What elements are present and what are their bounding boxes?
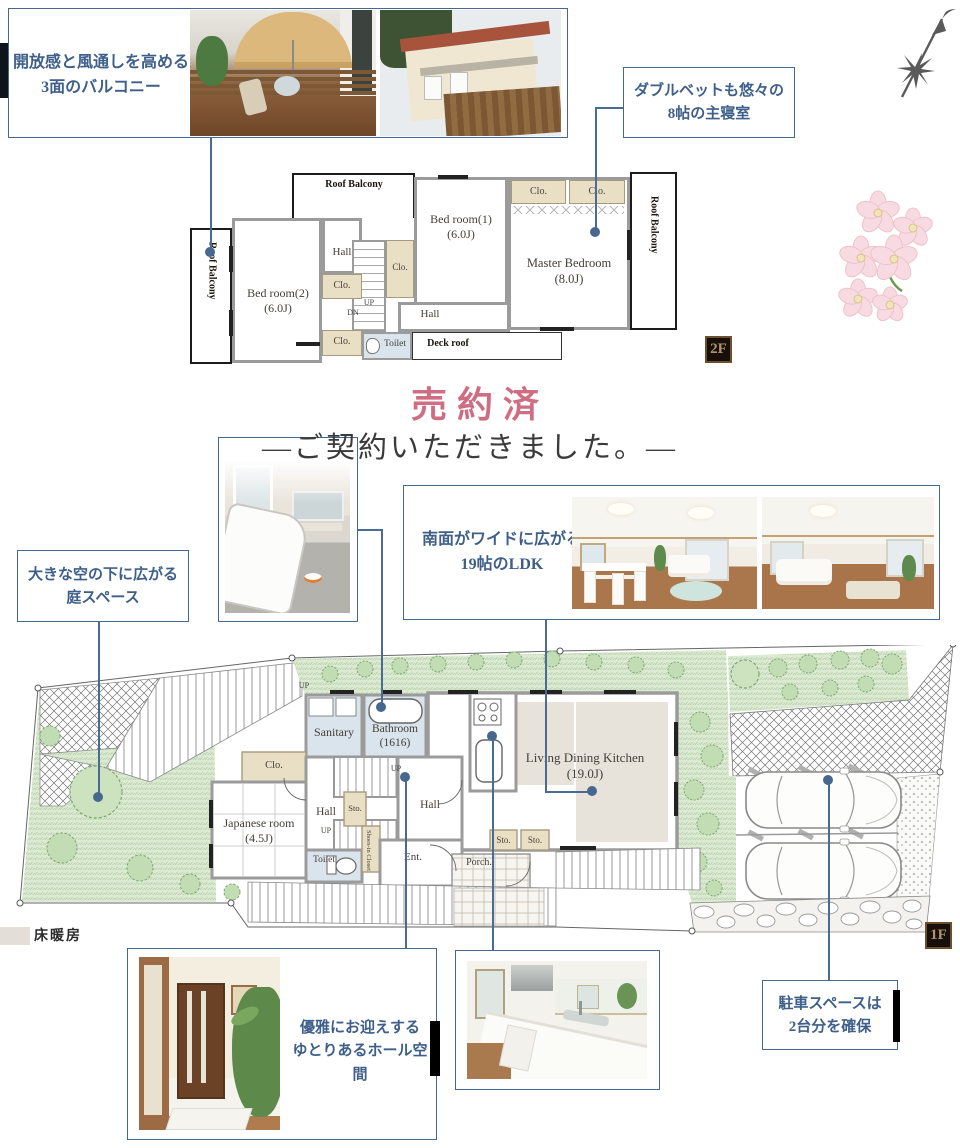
bedroom2-label: Bed room(2) (6.0J) [226,286,330,316]
hall-upper-2f-label: Hall [322,246,362,260]
callout-balcony-line1: 開放感と風通しを高める [11,51,191,76]
callout-garden-text: 大きな空の下に広がる 庭スペース [18,564,188,611]
cherry-blossom-decoration [828,183,948,333]
toilet-2f-label: Toilet [378,339,412,351]
closet-master-right-label: Clo. [569,186,625,199]
callout-balcony: 開放感と風通しを高める 3面のバルコニー [8,8,568,138]
callout-parking-text: 駐車スペースは 2台分を確保 [763,993,897,1040]
callout-hall-line2: ゆとりあるホール空間 [286,1040,434,1087]
japanese-room-label: Japanese room (4.5J) [210,816,308,846]
toilet-1f-label: Toilet [304,855,344,867]
leader-balcony-dot [205,247,215,257]
sto-2-label: Sto. [521,835,549,846]
leader-bath-dot [376,702,386,712]
window-tick [540,327,574,331]
sanitary-label: Sanitary [306,725,362,740]
master-label: Master Bedroom (8.0J) [512,256,626,287]
closet-bed1-2f-label: Clo. [384,262,416,273]
table-shape [274,76,300,96]
bathroom-photo [225,445,350,613]
japanese-room-name: Japanese room [210,816,308,831]
window-tick [627,230,631,260]
plant-shape [902,555,916,581]
ldk-photo-1 [572,497,757,609]
dn-label-2f: DN [340,308,366,318]
ldk-photo-2 [762,497,934,609]
up-label-2f: UP [356,298,382,308]
window-tick [438,175,468,179]
roof-balcony-top-label: Roof Balcony [294,179,414,192]
up-deck-label: UP [292,681,316,691]
page: 開放感と風通しを高める 3面のバルコニー ダブルベットも悠々 [0,0,960,1148]
house-window [424,76,442,100]
left-edge-tab [0,43,8,98]
sold-title: 売約済 [330,376,630,428]
entrance-label: Ent. [386,851,440,865]
bedroom1-size: (6.0J) [410,227,512,242]
callout-ldk: 南面がワイドに広がる 19帖のLDK [403,485,940,620]
leader-parking-dot [823,775,833,785]
window-tick [296,342,320,346]
bedroom1-label: Bed room(1) (6.0J) [410,212,512,242]
dining-table-shape [582,563,646,571]
leader-master-h [595,107,623,109]
leader-garden-dot [93,792,103,802]
range-hood [511,965,553,991]
closet-1f-label: Clo. [242,759,306,772]
floor-2f-badge: 2F [705,336,732,363]
sofa-shape [776,559,832,581]
callout-garden-line2: 庭スペース [18,587,188,610]
ldk-size: (19.0J) [505,766,665,782]
rug-shape [670,581,722,601]
callout-ldk-line1: 南面がワイドに広がる [412,528,592,553]
callout-parking-line1: 駐車スペースは [763,993,897,1016]
porch-label: Porch. [452,857,506,870]
exterior-photo [380,10,561,136]
callout-garden-line1: 大きな空の下に広がる [18,564,188,587]
wood-balcony-shape [444,86,561,136]
kitchen-photo-box [455,950,660,1090]
leader-balcony [210,138,212,252]
entrance-photo [139,957,280,1130]
compass-icon [880,5,960,110]
chair-shape [584,571,596,603]
callout-ldk-text: 南面がワイドに広がる 19帖のLDK [412,528,592,578]
leader-ldk-h [545,791,592,793]
hall-lower-2f-label: Hall [400,308,460,322]
roof-balcony-top: Roof Balcony [292,173,415,218]
bedroom2-size: (6.0J) [226,301,330,316]
leader-bath-v [381,529,383,707]
callout-balcony-line2: 3面のバルコニー [11,76,191,101]
ceiling-light [608,503,634,515]
roof-balcony-right: Roof Balcony [630,172,677,330]
callout-hall-line1: 優雅にお迎えする [286,1017,434,1040]
parking-box-tab [893,990,900,1042]
closet-master-left-label: Clo. [511,186,566,199]
leader-hall [405,777,407,948]
leader-garden [98,622,100,797]
callout-master-line2: 8帖の主寝室 [624,103,794,126]
floorplan-1f-drawing [0,645,960,945]
ldk-label: Living Dining Kitchen (19.0J) [505,750,665,783]
sofa-shape [668,555,710,573]
kitchen-photo [467,961,647,1079]
table-shape [846,581,900,599]
floor-1f-badge: 1F [925,922,952,949]
sto-mid-label: Sto. [344,803,366,814]
crown-molding [572,537,757,539]
chair-shape [612,573,624,605]
hall-left-label: Hall [306,805,346,819]
car-2 [746,839,901,903]
callout-parking-line2: 2台分を確保 [763,1016,897,1039]
leader-ldk-dot [587,786,597,796]
plant-shape [617,983,637,1009]
leader-hall-dot [400,772,410,782]
photo-bucket [304,573,322,583]
door-slit [201,991,206,1083]
hall-box-tab [430,1021,440,1076]
plant-shape [196,36,228,86]
leader-parking [828,780,830,980]
closet-bottom-2f-label: Clo. [322,336,362,349]
bathroom-size: (1616) [362,736,428,750]
door-glass-panel [144,965,162,1115]
window-tick [229,246,233,272]
chair-shape [634,571,646,601]
floor-heating-label: 床暖房 [34,928,104,946]
deck-roof-label: Deck roof [416,338,480,351]
sto-1-label: Sto. [490,835,517,846]
crown-molding [762,535,934,537]
closet-mid-2f-label: Clo. [322,280,362,293]
callout-hall-text: 優雅にお迎えする ゆとりあるホール空間 [286,1017,434,1087]
leader-master-dot [590,227,600,237]
leader-ldk-v [545,620,547,792]
ceiling-light [688,507,714,519]
ceiling-light [810,505,836,517]
hanger-zigzag [512,206,624,214]
japanese-room-size: (4.5J) [210,831,308,846]
floor-heating-bar [0,927,30,945]
tile-floor [165,1108,252,1130]
master-name: Master Bedroom [512,256,626,272]
roof-balcony-right-label: Roof Balcony [647,196,660,254]
leader-kitchen [492,736,494,950]
faucet [579,1001,582,1015]
callout-garden: 大きな空の下に広がる 庭スペース [17,550,189,622]
ldk-name: Living Dining Kitchen [505,750,665,766]
callout-balcony-text: 開放感と風通しを高める 3面のバルコニー [11,51,191,101]
callout-parking: 駐車スペースは 2台分を確保 [762,980,898,1050]
master-size: (8.0J) [512,272,626,288]
sold-subtitle: ―ご契約いただきました。― [150,424,790,466]
bedroom1-name: Bed room(1) [410,212,512,227]
plant-shape [654,545,666,571]
bathroom-label: Bathroom (1616) [362,722,428,751]
hall-right-label: Hall [398,798,462,812]
callout-hall: 優雅にお迎えする ゆとりあるホール空間 [127,948,437,1140]
callout-ldk-line2: 19帖のLDK [412,553,592,578]
bedroom2-name: Bed room(2) [226,286,330,301]
bathroom-name: Bathroom [362,722,428,736]
leader-kitchen-dot [487,731,497,741]
balcony-photo [190,10,376,136]
callout-master: ダブルベットも悠々の 8帖の主寝室 [623,67,795,138]
up-stairs-lower-label: UP [314,826,338,836]
callout-master-line1: ダブルベットも悠々の [624,80,794,103]
door-slit [187,991,192,1083]
shoes-closet-label: Shoes-in Closet [364,829,372,871]
leader-master-v [595,107,597,232]
leader-bath-h [358,529,382,531]
callout-master-text: ダブルベットも悠々の 8帖の主寝室 [624,80,794,127]
